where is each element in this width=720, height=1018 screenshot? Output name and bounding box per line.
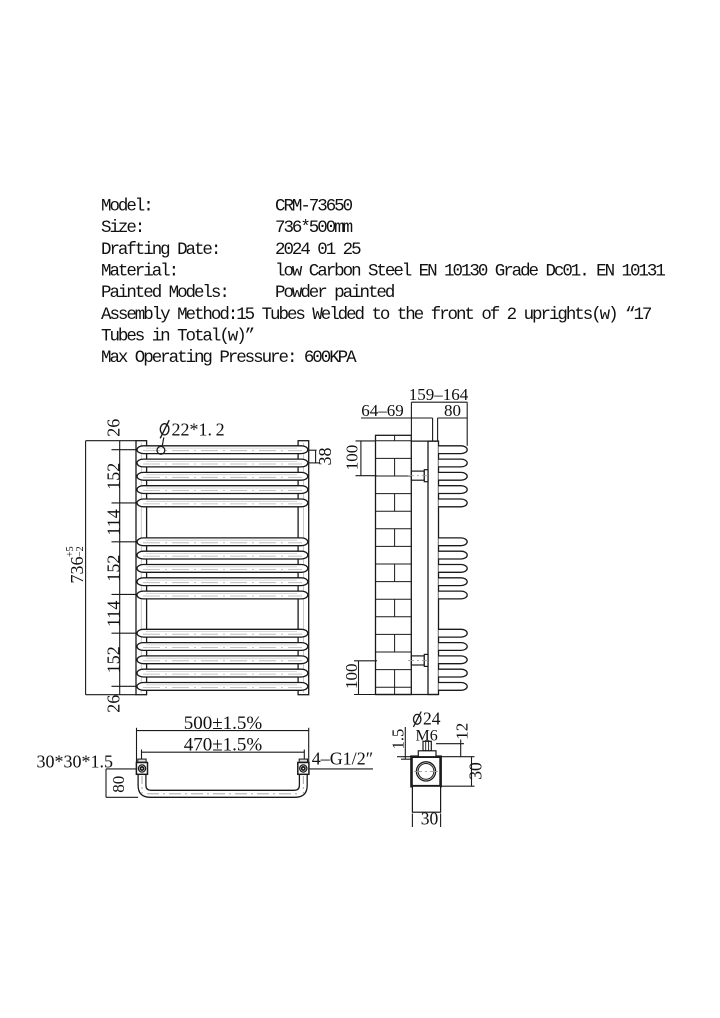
- svg-text:152: 152: [104, 463, 124, 490]
- svg-text:M6: M6: [415, 728, 437, 745]
- svg-text:4–G1/2″: 4–G1/2″: [312, 748, 374, 768]
- svg-text:12: 12: [452, 723, 471, 740]
- svg-text:736*500mm: 736*500mm: [275, 218, 353, 238]
- svg-text:30: 30: [465, 762, 485, 780]
- svg-text:152: 152: [104, 555, 124, 582]
- svg-text:114: 114: [104, 601, 124, 627]
- svg-text:1.5: 1.5: [389, 729, 408, 750]
- svg-text:Tubes in Total(w)”: Tubes in Total(w)”: [101, 327, 254, 347]
- svg-text:Material:: Material:: [101, 262, 177, 282]
- svg-text:Drafting Date:: Drafting Date:: [101, 240, 219, 260]
- svg-text:−2: −2: [75, 546, 86, 557]
- svg-text:30: 30: [421, 808, 439, 828]
- svg-text:Painted Models:: Painted Models:: [101, 283, 228, 303]
- svg-text:736: 736: [67, 557, 87, 584]
- svg-text:38: 38: [315, 448, 335, 466]
- svg-text:26: 26: [104, 695, 124, 713]
- svg-text:Assembly Method:15 Tubes Welde: Assembly Method:15 Tubes Welded to the f…: [101, 305, 652, 325]
- svg-text:24: 24: [423, 709, 441, 729]
- svg-text:100: 100: [342, 663, 361, 689]
- svg-text:114: 114: [104, 509, 124, 535]
- svg-text:80: 80: [444, 401, 461, 420]
- svg-text:Powder painted: Powder painted: [275, 283, 394, 303]
- svg-text:80: 80: [109, 776, 128, 793]
- svg-text:2024 01 25: 2024 01 25: [275, 240, 361, 260]
- svg-text:26: 26: [104, 419, 124, 437]
- svg-text:low Carbon Steel EN 10130 Grad: low Carbon Steel EN 10130 Grade Dc01. EN…: [275, 262, 665, 282]
- svg-text:Size:: Size:: [101, 218, 143, 238]
- svg-text:Model:: Model:: [101, 197, 152, 217]
- svg-text:64–69: 64–69: [361, 401, 404, 420]
- svg-text:Max Operating Pressure: 600KPA: Max Operating Pressure: 600KPA: [101, 348, 357, 368]
- svg-text:30*30*1.5: 30*30*1.5: [37, 751, 114, 771]
- svg-text:100: 100: [343, 445, 362, 471]
- svg-text:152: 152: [104, 646, 124, 673]
- svg-text:CRM-73650: CRM-73650: [275, 197, 353, 217]
- svg-text:22*1. 2: 22*1. 2: [172, 419, 225, 439]
